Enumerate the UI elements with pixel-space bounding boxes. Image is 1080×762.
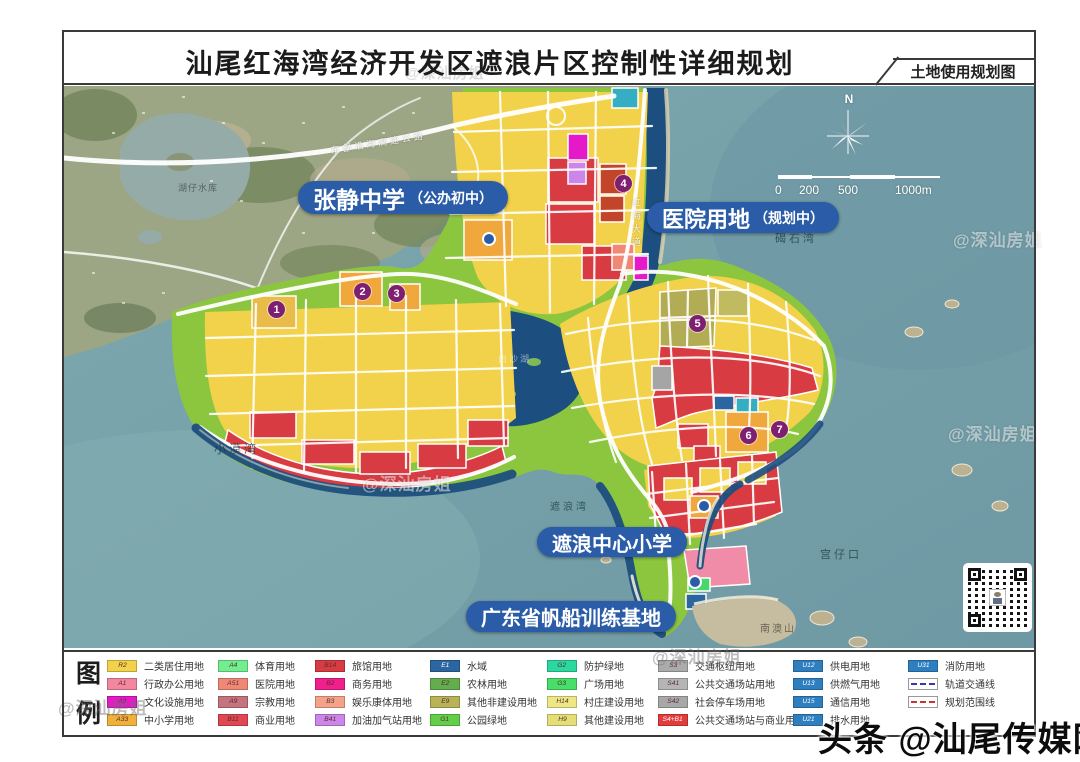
school-name-suffix: （公办初中） (409, 188, 493, 208)
legend-item: E1水域 (430, 659, 537, 672)
legend-swatch: U13 (793, 678, 823, 690)
hospital-name: 医院用地 (662, 202, 750, 234)
legend-swatch: H14 (547, 696, 577, 708)
label-zhelang-primary: 遮浪中心小学 (537, 527, 687, 557)
legend-swatch: G1 (430, 714, 460, 726)
site-marker-3: 3 (388, 285, 405, 302)
legend-swatch: H9 (547, 714, 577, 726)
legend-item: G2防护绿地 (547, 659, 644, 672)
place-lake: 白沙湖 (498, 352, 531, 365)
boundary-line-symbol (908, 696, 938, 708)
qr-center-logo (989, 589, 1006, 606)
legend-swatch: U12 (793, 660, 823, 672)
page-title: 汕尾红海湾经济开发区遮浪片区控制性详细规划 (70, 42, 910, 81)
legend-item: S4+B1公共交通场站与商业用地 (658, 713, 805, 726)
legend-item: G1公园绿地 (430, 713, 537, 726)
legend-item: S41公共交通场站用地 (658, 677, 805, 690)
legend-swatch: S41 (658, 678, 688, 690)
legend-column-8: U31消防用地 轨道交通线 规划范围线 (908, 659, 995, 708)
watermark-social: @深汕房姐 (58, 694, 148, 719)
legend-swatch: A1 (107, 678, 137, 690)
site-marker-1: 1 (268, 301, 285, 318)
place-west-bay: 小漠湾 (214, 440, 259, 457)
watermark-social: @深汕房姐 (652, 643, 742, 668)
legend-item: A1行政办公用地 (107, 677, 204, 690)
legend-item: A4体育用地 (218, 659, 295, 672)
legend-swatch: U15 (793, 696, 823, 708)
zhelang-primary-dot (697, 499, 711, 513)
legend-column-4: E1水域 E2农林用地 E9其他非建设用地 G1公园绿地 (430, 659, 537, 726)
place-hill: 南澳山 (760, 620, 796, 635)
legend-item: G3广场用地 (547, 677, 644, 690)
label-hospital: 医院用地 （规划中） (647, 202, 839, 233)
legend-title-char-1: 图 (76, 654, 101, 690)
place-reservoir: 湖仔水库 (178, 181, 218, 194)
legend-swatch: B3 (315, 696, 345, 708)
scale-tick-1000: 1000m (895, 183, 932, 197)
primary-school-name: 遮浪中心小学 (552, 528, 672, 557)
school-name: 张静中学 (313, 181, 405, 215)
label-sailing-base: 广东省帆船训练基地 (466, 601, 676, 632)
legend-swatch: B11 (218, 714, 248, 726)
legend-column-5: G2防护绿地 G3广场用地 H14村庄建设用地 H9其他建设用地 (547, 659, 644, 726)
legend-item: E9其他非建设用地 (430, 695, 537, 708)
legend-item: 轨道交通线 (908, 677, 995, 690)
scale-tick-0: 0 (775, 183, 782, 197)
sailing-base-dot (688, 575, 702, 589)
compass-rose-icon (823, 108, 873, 158)
legend-swatch: A4 (218, 660, 248, 672)
legend-swatch: E9 (430, 696, 460, 708)
legend-swatch: S4+B1 (658, 714, 688, 726)
legend-item: B2商务用地 (315, 677, 422, 690)
legend-swatch: G3 (547, 678, 577, 690)
sailing-base-name: 广东省帆船训练基地 (481, 602, 661, 631)
legend-item: E2农林用地 (430, 677, 537, 690)
scale-tick-200: 200 (799, 183, 819, 197)
hospital-name-suffix: （规划中） (754, 208, 824, 228)
site-marker-5: 5 (689, 315, 706, 332)
scale-tick-500: 500 (838, 183, 858, 197)
label-zhangjing-school: 张静中学 （公办初中） (298, 181, 508, 214)
legend-swatch: A9 (218, 696, 248, 708)
site-marker-6: 6 (740, 427, 757, 444)
legend-column-3: B14旅馆用地 B2商务用地 B3娱乐康体用地 B41加油加气站用地 (315, 659, 422, 726)
legend-item: U31消防用地 (908, 659, 995, 672)
legend-swatch: A51 (218, 678, 248, 690)
place-cape: 宫仔口 (820, 546, 862, 562)
legend-swatch: B2 (315, 678, 345, 690)
site-marker-4: 4 (615, 175, 632, 192)
legend-item: B41加油加气站用地 (315, 713, 422, 726)
legend-swatch: U31 (908, 660, 938, 672)
map-type-label: 土地使用规划图 (897, 61, 1029, 82)
legend-item: A9宗教用地 (218, 695, 295, 708)
compass-north-label: N (840, 92, 858, 106)
legend-item: U13供燃气用地 (793, 677, 880, 690)
legend-column-6: S3交通枢纽用地 S41公共交通场站用地 S42社会停车场用地 S4+B1公共交… (658, 659, 805, 726)
watermark-publisher: 头条 @汕尾传媒网 (818, 712, 1080, 761)
legend-item: H14村庄建设用地 (547, 695, 644, 708)
legend-swatch: E2 (430, 678, 460, 690)
legend-item: B14旅馆用地 (315, 659, 422, 672)
legend-swatch: S42 (658, 696, 688, 708)
legend-item: U12供电用地 (793, 659, 880, 672)
legend-swatch: E1 (430, 660, 460, 672)
site-marker-2: 2 (354, 283, 371, 300)
legend-item: H9其他建设用地 (547, 713, 644, 726)
legend-item: B11商业用地 (218, 713, 295, 726)
legend-swatch: B14 (315, 660, 345, 672)
legend-item: R2二类居住用地 (107, 659, 204, 672)
place-south-bay: 遮浪湾 (550, 498, 589, 513)
legend-item: S42社会停车场用地 (658, 695, 805, 708)
legend-swatch: G2 (547, 660, 577, 672)
watermark-social: @深汕房姐 (948, 420, 1038, 445)
site-marker-7: 7 (771, 421, 788, 438)
qr-code (963, 563, 1032, 632)
watermark-social: @深汕房姐 (362, 470, 452, 495)
planning-map-page: 张静中学 （公办初中） 医院用地 （规划中） 遮浪中心小学 广东省帆船训练基地 … (0, 0, 1080, 762)
zhangjing-school-dot (482, 232, 496, 246)
maptype-box-line (893, 58, 1034, 60)
legend-item: B3娱乐康体用地 (315, 695, 422, 708)
road-avenue-label: 红海大道 (630, 198, 643, 250)
legend-item: U15通信用地 (793, 695, 880, 708)
watermark-social: @深汕房姐 (405, 62, 485, 83)
watermark-social: @深汕房姐 (953, 226, 1043, 251)
rail-line-symbol (908, 678, 938, 690)
legend-item: 规划范围线 (908, 695, 995, 708)
legend-item: A51医院用地 (218, 677, 295, 690)
legend-swatch: B41 (315, 714, 345, 726)
legend-swatch: R2 (107, 660, 137, 672)
scale-bar: 0 200 500 1000m (775, 170, 945, 198)
legend-column-2: A4体育用地 A51医院用地 A9宗教用地 B11商业用地 (218, 659, 295, 726)
